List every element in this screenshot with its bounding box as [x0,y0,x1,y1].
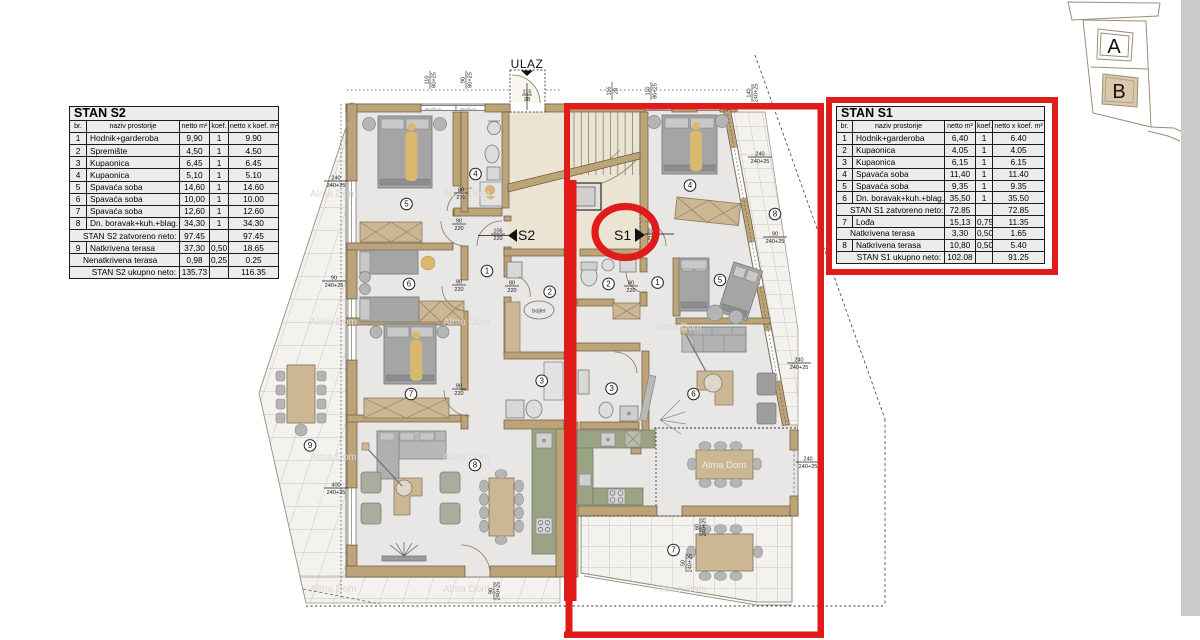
svg-text:3: 3 [609,384,614,393]
svg-text:1: 1 [485,267,490,276]
svg-text:80: 80 [458,188,464,194]
svg-text:240: 240 [794,358,803,364]
svg-text:220: 220 [454,391,463,397]
svg-text:80+25: 80+25 [468,72,474,88]
svg-text:Alma Dom: Alma Dom [443,584,490,595]
svg-text:28: 28 [614,88,620,94]
svg-text:240+25: 240+25 [327,183,346,189]
svg-text:Alma Dom: Alma Dom [310,584,357,595]
svg-text:ULAZ: ULAZ [511,57,544,71]
svg-text:240+25: 240+25 [751,159,770,165]
svg-text:240+25: 240+25 [688,554,694,573]
svg-text:80: 80 [509,281,515,287]
svg-text:4: 4 [473,170,478,179]
svg-text:28: 28 [524,97,530,103]
svg-text:90: 90 [456,219,462,225]
svg-text:6: 6 [691,390,696,399]
svg-text:Alma Dom: Alma Dom [655,322,702,333]
svg-text:90: 90 [456,384,462,390]
svg-text:270: 270 [456,195,465,201]
svg-text:9: 9 [308,441,313,450]
svg-text:7: 7 [671,546,676,555]
svg-text:140: 140 [747,88,753,97]
svg-text:220: 220 [454,226,463,232]
svg-text:110: 110 [425,76,431,85]
svg-text:220: 220 [454,287,463,293]
svg-text:60: 60 [695,524,701,530]
svg-text:A: A [1107,36,1121,58]
svg-text:2: 2 [606,280,611,289]
svg-text:8: 8 [773,210,778,219]
svg-text:S2: S2 [518,227,535,243]
svg-text:90: 90 [772,232,778,238]
svg-text:240+25: 240+25 [496,582,502,601]
svg-text:240: 240 [803,457,812,463]
svg-text:110: 110 [646,87,652,96]
svg-text:7: 7 [409,390,414,399]
svg-text:Alma Dom: Alma Dom [310,452,357,463]
svg-text:105: 105 [493,229,502,235]
svg-text:Alma Dom: Alma Dom [660,584,707,595]
svg-text:bojler: bojler [532,309,546,315]
svg-text:90: 90 [489,588,495,594]
svg-text:400: 400 [331,483,340,489]
svg-text:90: 90 [331,276,337,282]
svg-text:Alma Dom: Alma Dom [310,317,357,328]
svg-text:240+25: 240+25 [325,283,344,289]
svg-text:B: B [1112,81,1125,103]
svg-text:240+25: 240+25 [702,518,708,537]
svg-text:90: 90 [456,280,462,286]
svg-text:3: 3 [539,376,544,385]
svg-text:80: 80 [628,281,634,287]
svg-text:6: 6 [407,280,412,289]
svg-text:5: 5 [404,200,409,209]
svg-text:240+25: 240+25 [799,464,818,470]
svg-text:80+25: 80+25 [653,83,659,99]
svg-text:80+25: 80+25 [432,72,438,88]
svg-text:220: 220 [507,288,516,294]
svg-text:Prečkon: Prečkon [460,107,477,112]
svg-text:Alma Dom: Alma Dom [702,460,746,471]
svg-text:240+25: 240+25 [790,365,809,371]
svg-text:4: 4 [688,181,693,190]
svg-text:115: 115 [607,87,613,96]
svg-text:1: 1 [655,278,660,287]
svg-text:115: 115 [523,90,532,96]
svg-text:8: 8 [473,461,478,470]
svg-text:S1: S1 [614,227,631,243]
svg-text:240+25: 240+25 [766,239,785,245]
svg-text:Alma Dom: Alma Dom [443,317,490,328]
svg-text:220: 220 [493,236,502,242]
svg-text:240: 240 [331,176,340,182]
svg-text:Prečkon: Prečkon [425,107,442,112]
svg-text:Alma Dom: Alma Dom [443,189,490,200]
svg-text:240: 240 [755,152,764,158]
svg-text:Alma Dom: Alma Dom [310,189,357,200]
svg-text:50: 50 [681,560,687,566]
svg-text:240+25: 240+25 [754,84,760,103]
svg-text:Alma Dom: Alma Dom [443,452,490,463]
svg-text:2: 2 [547,287,552,296]
svg-text:5: 5 [718,276,723,285]
svg-text:90: 90 [461,77,467,83]
svg-text:220: 220 [626,288,635,294]
svg-text:240+25: 240+25 [327,490,346,496]
